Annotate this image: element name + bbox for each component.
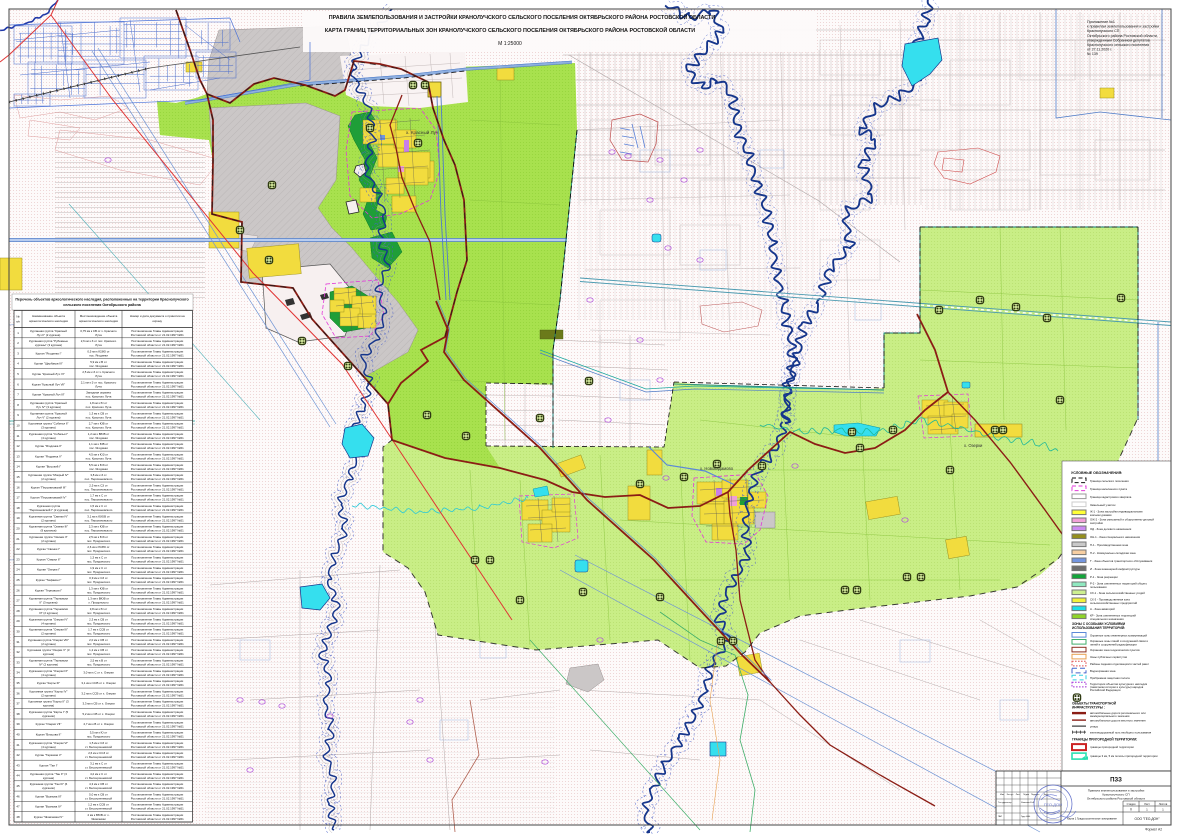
- svg-text:ГАП: ГАП: [998, 815, 1002, 818]
- svg-text:Луча: Луча: [95, 384, 102, 388]
- svg-text:Ростовской области от 21.02.19: Ростовской области от 21.02.1997 №51: [131, 395, 184, 399]
- svg-text:ПРАВИЛА ЗЕМЛЕПОЛЬЗОВАНИЯ И ЗАС: ПРАВИЛА ЗЕМЛЕПОЛЬЗОВАНИЯ И ЗАСТРОЙКИ КРА…: [329, 13, 716, 21]
- svg-text:Российской Федерации: Российской Федерации: [1090, 688, 1121, 692]
- svg-text:Ростовской области от 21.02.19: Ростовской области от 21.02.1997 №51: [131, 364, 184, 368]
- svg-text:Формат А2: Формат А2: [1145, 828, 1162, 832]
- svg-text:х. Красный Луч: х. Красный Луч: [406, 129, 439, 135]
- svg-text:П: П: [1130, 808, 1132, 812]
- svg-text:Луча: Луча: [95, 374, 102, 378]
- svg-text:38: 38: [16, 712, 20, 716]
- svg-text:курганы" (3 кургана): курганы" (3 кургана): [35, 343, 62, 347]
- svg-text:Районы падения отделяющихся ча: Районы падения отделяющихся частей ракет: [1090, 662, 1150, 666]
- svg-text:Лист: Лист: [1144, 802, 1150, 806]
- svg-text:пос. Придонского: пос. Придонского: [87, 652, 111, 656]
- svg-text:к правилам землепользования и: к правилам землепользования и застройки: [1087, 25, 1159, 29]
- svg-text:3,1 км к ССВ от х. Озерки: 3,1 км к ССВ от х. Озерки: [81, 681, 116, 685]
- svg-text:Перечень объектов археологичес: Перечень объектов археологического насле…: [15, 298, 189, 302]
- svg-text:пос. Ягодинки: пос. Ягодинки: [89, 364, 108, 368]
- svg-text:44: 44: [16, 774, 20, 778]
- svg-text:10: 10: [16, 423, 20, 427]
- svg-text:Ростовской области от 21.02.19: Ростовской области от 21.02.1997 №51: [131, 384, 184, 388]
- svg-text:ИСПОЛЬЗОВАНИЯ ТЕРРИТОРИЙ:: ИСПОЛЬЗОВАНИЯ ТЕРРИТОРИЙ:: [1072, 626, 1125, 630]
- svg-text:34: 34: [16, 671, 20, 675]
- svg-text:№док: №док: [1023, 793, 1029, 796]
- svg-text:ст. Бессергеневской: ст. Бессергеневской: [85, 755, 112, 759]
- svg-text:охрану: охрану: [152, 319, 162, 323]
- svg-text:пос. Придонского: пос. Придонского: [87, 570, 111, 574]
- svg-text:31: 31: [16, 640, 20, 644]
- svg-text:ГЕО-ДОН: ГЕО-ДОН: [1044, 802, 1062, 807]
- svg-text:36: 36: [16, 691, 20, 695]
- svg-text:Курган "Ягодинка V": Курган "Ягодинка V": [35, 454, 62, 458]
- svg-text:№ 139: № 139: [1087, 52, 1098, 56]
- svg-text:Ростовской области от 21.02.19: Ростовской области от 21.02.1997 №51: [131, 632, 184, 636]
- svg-text:Ростовской области от 21.02.19: Ростовской области от 21.02.1997 №51: [131, 405, 184, 409]
- svg-text:Номер и дата документа о приня: Номер и дата документа о принятии на: [130, 314, 185, 318]
- svg-text:кургана): кургана): [43, 776, 54, 780]
- svg-text:Ростовской области от 21.02.19: Ростовской области от 21.02.1997 №51: [131, 333, 184, 337]
- svg-text:Ростовской области от 21.02.19: Ростовской области от 21.02.1997 №51: [131, 498, 184, 502]
- svg-text:Луч II" (2 кургана): Луч II" (2 кургана): [37, 333, 61, 337]
- svg-text:35: 35: [16, 681, 20, 685]
- svg-text:пос. Придонского: пос. Придонского: [87, 735, 111, 739]
- svg-text:Ростовской области от 21.02.19: Ростовской области от 21.02.1997 №51: [131, 436, 184, 440]
- svg-text:21: 21: [16, 537, 20, 541]
- svg-text:Курган "Щербаков III": Курган "Щербаков III": [34, 362, 63, 366]
- svg-text:Ростовской области от 21.02.19: Ростовской области от 21.02.1997 №51: [131, 796, 184, 800]
- svg-text:Курган "Власова II": Курган "Власова II": [36, 733, 62, 737]
- svg-text:Ростовской области от 21.02.19: Ростовской области от 21.02.1997 №51: [131, 817, 184, 821]
- svg-text:Краснолучского сельского посел: Краснолучского сельского поселения: [1087, 43, 1149, 47]
- svg-text:ст. Бессергеневской: ст. Бессергеневской: [85, 807, 112, 811]
- svg-text:Тех.директор: Тех.директор: [998, 802, 1012, 804]
- svg-text:границы пригородной территории: границы пригородной территории: [1090, 745, 1134, 749]
- svg-text:"Персиановский I" (2 кургана): "Персиановский I" (2 кургана): [29, 508, 69, 512]
- svg-text:Ростовской области от 21.02.19: Ростовской области от 21.02.1997 №51: [131, 477, 184, 481]
- svg-text:кургана): кургана): [43, 652, 54, 656]
- svg-text:(2 кургана): (2 кургана): [41, 642, 55, 646]
- svg-text:11: 11: [16, 434, 19, 438]
- svg-text:17: 17: [16, 496, 20, 500]
- svg-text:х. Придонского: х. Придонского: [88, 601, 109, 605]
- svg-text:х. Новокадамово: х. Новокадамово: [700, 466, 734, 471]
- svg-text:43: 43: [16, 763, 20, 767]
- svg-text:Курган "Свинки I": Курган "Свинки I": [37, 547, 60, 551]
- svg-text:Стадия: Стадия: [1127, 802, 1136, 806]
- svg-text:Ростовской области от 21.02.19: Ростовской области от 21.02.1997 №51: [131, 559, 184, 563]
- svg-text:М 1:25000: М 1:25000: [498, 41, 522, 47]
- svg-text:39: 39: [16, 722, 20, 726]
- svg-text:12: 12: [16, 444, 20, 448]
- svg-text:ПЗЗ: ПЗЗ: [1110, 778, 1122, 784]
- svg-text:Ростовской области от 21.02.19: Ростовской области от 21.02.1997 №51: [131, 590, 184, 594]
- svg-text:п/п: п/п: [16, 320, 20, 324]
- svg-text:13: 13: [16, 454, 20, 458]
- svg-text:пос. Придонского: пос. Придонского: [87, 611, 111, 615]
- svg-text:пос. Персиановского: пос. Персиановского: [85, 529, 113, 533]
- svg-text:Карта 1 Градостроительное зони: Карта 1 Градостроительное зонирование: [1067, 817, 1117, 821]
- svg-text:29: 29: [16, 619, 20, 623]
- svg-text:IV" (2 кургана): IV" (2 кургана): [39, 663, 58, 667]
- svg-text:от 27.11.2020 г.: от 27.11.2020 г.: [1087, 48, 1112, 52]
- svg-text:Ростовской области от 21.02.19: Ростовской области от 21.02.1997 №51: [131, 601, 184, 605]
- svg-text:ОД - Зона делового назначения: ОД - Зона делового назначения: [1090, 527, 1132, 531]
- svg-text:30: 30: [16, 630, 20, 634]
- svg-text:пос. Ягодинки: пос. Ягодинки: [89, 467, 108, 471]
- svg-text:5,2 км к СВ от х. Озерки: 5,2 км к СВ от х. Озерки: [82, 712, 115, 716]
- svg-text:45: 45: [16, 784, 20, 788]
- svg-text:пос. Придонского: пос. Придонского: [87, 559, 111, 563]
- svg-text:Ростовской области от 21.02.19: Ростовской области от 21.02.1997 №51: [131, 456, 184, 460]
- svg-text:Курган "Озерки II": Курган "Озерки II": [37, 557, 61, 561]
- svg-text:22: 22: [16, 547, 20, 551]
- svg-text:24: 24: [16, 568, 20, 572]
- svg-text:Ростовской области от 21.02.19: Ростовской области от 21.02.1997 №51: [131, 704, 184, 708]
- svg-text:Ростовской области от 21.02.19: Ростовской области от 21.02.1997 №51: [131, 642, 184, 646]
- svg-text:41: 41: [16, 743, 20, 747]
- svg-text:Ростовской области от 21.02.19: Ростовской области от 21.02.1997 №51: [131, 683, 184, 687]
- svg-text:автомобильные дороги местного: автомобильные дороги местного значения: [1090, 718, 1146, 722]
- svg-text:Курган "Персиановский IV": Курган "Персиановский IV": [31, 496, 67, 500]
- svg-text:Ростовской области от 21.02.19: Ростовской области от 21.02.1997 №51: [131, 611, 184, 615]
- svg-text:Курган "Тюфякин I": Курган "Тюфякин I": [36, 578, 62, 582]
- svg-text:пос. Придонского: пос. Придонского: [87, 642, 111, 646]
- svg-text:Водоохранная зона: Водоохранная зона: [1090, 669, 1116, 673]
- svg-text:Курган "Всанова III": Курган "Всанова III": [35, 794, 61, 798]
- svg-text:16: 16: [16, 485, 20, 489]
- svg-text:пос. Персиановского: пос. Персиановского: [85, 498, 113, 502]
- svg-text:Ростовской области от 21.02.19: Ростовской области от 21.02.1997 №51: [131, 467, 184, 471]
- svg-text:Луч IV" (3 кургана): Луч IV" (3 кургана): [36, 405, 61, 409]
- svg-text:Ростовской области от 21.02.19: Ростовской области от 21.02.1997 №51: [131, 343, 184, 347]
- svg-text:Прибрежная защитная полоса: Прибрежная защитная полоса: [1090, 676, 1130, 680]
- svg-text:х. Озерки: х. Озерки: [964, 443, 983, 448]
- svg-text:Ростовской области от 21.02.19: Ростовской области от 21.02.1997 №51: [131, 353, 184, 357]
- svg-text:пос. Придонского: пос. Придонского: [87, 549, 111, 553]
- svg-text:пос. Персиановского: пос. Персиановского: [85, 487, 113, 491]
- svg-text:47: 47: [16, 805, 20, 809]
- svg-text:Зоны публичных сервитутов: Зоны публичных сервитутов: [1090, 655, 1127, 659]
- svg-text:20: 20: [16, 526, 20, 530]
- svg-text:2,7 км к В от х. Озерки: 2,7 км к В от х. Озерки: [83, 722, 113, 726]
- svg-text:сельскохозяйственных предприят: сельскохозяйственных предприятий: [1090, 601, 1138, 605]
- svg-text:25: 25: [16, 578, 20, 582]
- svg-text:пос. Придонского: пос. Придонского: [87, 663, 111, 667]
- svg-text:Ростовской области от 21.02.19: Ростовской области от 21.02.1997 №51: [131, 807, 184, 811]
- svg-text:пос. Придонского: пос. Придонского: [87, 632, 111, 636]
- svg-text:пос. Придонского: пос. Придонского: [87, 621, 111, 625]
- svg-text:Ростовской области от 21.02.19: Ростовской области от 21.02.1997 №51: [131, 446, 184, 450]
- svg-text:Кол.уч: Кол.уч: [1007, 794, 1014, 796]
- svg-text:Яковлевки: Яковлевки: [91, 817, 106, 821]
- svg-text:ст. Бессергеневской: ст. Бессергеневской: [85, 796, 112, 800]
- svg-text:пос. Красного Луча: пос. Красного Луча: [86, 405, 112, 409]
- svg-text:курганов): курганов): [42, 786, 55, 790]
- svg-text:сельского поселения Октябрьско: сельского поселения Октябрьского района: [63, 303, 142, 307]
- svg-text:Ростовской области от 21.02.19: Ростовской области от 21.02.1997 №51: [131, 621, 184, 625]
- svg-text:пос. Красного Луча: пос. Красного Луча: [86, 415, 112, 419]
- svg-text:II" (3 кургана): II" (3 кургана): [40, 601, 58, 605]
- svg-text:Ростовской области от 21.02.19: Ростовской области от 21.02.1997 №51: [131, 724, 184, 728]
- svg-text:ОН-1 - Зона специального назна: ОН-1 - Зона специального назначения: [1090, 535, 1140, 539]
- svg-text:Курган "Тан I": Курган "Тан I": [39, 763, 57, 767]
- svg-text:Луч V" (2 кургана): Луч V" (2 кургана): [37, 415, 61, 419]
- svg-text:Ростовской области от 21.02.19: Ростовской области от 21.02.1997 №51: [131, 539, 184, 543]
- svg-text:Курган "Озерки VII": Курган "Озерки VII": [36, 722, 62, 726]
- svg-text:П-1 - Производственная зона: П-1 - Производственная зона: [1090, 543, 1129, 547]
- svg-text:жилыми домами: жилыми домами: [1090, 513, 1112, 517]
- svg-text:Октябрьского района Ростовской: Октябрьского района Ростовской области,: [1087, 34, 1158, 38]
- svg-text:Курган "Высокий I": Курган "Высокий I": [36, 465, 61, 469]
- svg-text:УСЛОВНЫЕ ОБОЗНАЧЕНИЯ:: УСЛОВНЫЕ ОБОЗНАЧЕНИЯ:: [1071, 471, 1122, 475]
- svg-text:Курган "Красный Луч VII": Курган "Красный Луч VII": [32, 382, 65, 386]
- svg-text:Курган "Озерки I": Курган "Озерки I": [37, 568, 60, 572]
- svg-text:ООО "ГЕО-ДОН": ООО "ГЕО-ДОН": [1135, 817, 1160, 821]
- svg-text:Наименование объекта: Наименование объекта: [32, 314, 65, 318]
- svg-text:границы 3 км, 5 км полосы приг: границы 3 км, 5 км полосы пригородной те…: [1090, 754, 1158, 758]
- svg-text:КАРТА ГРАНИЦ ТЕРРИТОРИАЛЬНЫХ З: КАРТА ГРАНИЦ ТЕРРИТОРИАЛЬНЫХ ЗОН КРАНОЛУ…: [325, 26, 695, 34]
- svg-text:железнодорожный путь необщего: железнодорожный путь необщего пользовани…: [1090, 730, 1152, 734]
- svg-text:ст. Бессергеневской: ст. Бессергеневской: [85, 766, 112, 770]
- svg-text:Граница кадастрового квартала: Граница кадастрового квартала: [1090, 495, 1132, 499]
- svg-text:Т - Зона объектов транспортног: Т - Зона объектов транспортного обслужив…: [1090, 559, 1153, 563]
- svg-text:СХ-1 - Зона сельскохозяйственн: СХ-1 - Зона сельскохозяйственных угодий: [1090, 591, 1145, 595]
- svg-text:пользования: пользования: [1090, 585, 1107, 589]
- svg-text:Изм: Изм: [1000, 794, 1005, 796]
- svg-text:48: 48: [16, 815, 20, 819]
- svg-text:(2 кургана): (2 кургана): [41, 693, 55, 697]
- svg-text:Листов: Листов: [1159, 802, 1168, 806]
- svg-text:Ростовской области от 21.02.19: Ростовской области от 21.02.1997 №51: [131, 549, 184, 553]
- svg-text:33: 33: [16, 660, 20, 664]
- svg-text:пос. Красного Луча: пос. Красного Луча: [86, 456, 112, 460]
- svg-text:(2 кургана): (2 кургана): [41, 539, 55, 543]
- svg-text:Курган "Всанова IV": Курган "Всанова IV": [35, 805, 62, 809]
- svg-text:археологического наследия: археологического наследия: [29, 319, 68, 323]
- svg-text:Ростовской области от 21.02.19: Ростовской области от 21.02.1997 №51: [131, 426, 184, 430]
- svg-text:(9 курганов): (9 курганов): [41, 529, 57, 533]
- svg-text:ст. Бессергеневской: ст. Бессергеневской: [85, 745, 112, 749]
- svg-text:3,0 км к С от х. Озерки: 3,0 км к С от х. Озерки: [83, 671, 114, 675]
- svg-text:пос. Ягодинки: пос. Ягодинки: [89, 353, 108, 357]
- svg-text:14: 14: [16, 465, 20, 469]
- svg-text:Краснолучского СП: Краснолучского СП: [1087, 29, 1120, 33]
- svg-text:Ростовской области от 21.02.19: Ростовской области от 21.02.1997 №51: [131, 652, 184, 656]
- svg-text:пос. Придонского: пос. Придонского: [87, 580, 111, 584]
- svg-text:Курган "Красный Луч VI": Курган "Красный Луч VI": [32, 372, 65, 376]
- svg-text:Местонахождение объекта: Местонахождение объекта: [80, 314, 118, 318]
- svg-text:Ростовской области от 21.02.19: Ростовской области от 21.02.1997 №51: [131, 374, 184, 378]
- svg-text:Курган "Персиановский III": Курган "Персиановский III": [31, 485, 67, 489]
- svg-text:(2 кургана): (2 кургана): [41, 632, 55, 636]
- svg-text:Граница населенного пункта: Граница населенного пункта: [1090, 487, 1128, 491]
- svg-text:Ростовской области от 21.02.19: Ростовской области от 21.02.1997 №51: [131, 487, 184, 491]
- svg-text:Курган "Карты III": Курган "Карты III": [37, 681, 60, 685]
- svg-text:Октябрьского района Ростовской: Октябрьского района Ростовской области: [1087, 797, 1146, 801]
- svg-text:Ростовской области от 21.02.19: Ростовской области от 21.02.1997 №51: [131, 714, 184, 718]
- svg-text:32: 32: [16, 650, 20, 654]
- svg-text:Земельный участок: Земельный участок: [1090, 503, 1116, 507]
- svg-text:кургана): кургана): [43, 704, 54, 708]
- svg-text:Охранная зона геодезических пу: Охранная зона геодезических пунктов: [1090, 648, 1140, 652]
- svg-text:Граница сельского поселения: Граница сельского поселения: [1090, 479, 1129, 483]
- svg-text:(3 кургана): (3 кургана): [41, 426, 55, 430]
- svg-text:Ростовской области от 21.02.19: Ростовской области от 21.02.1997 №51: [131, 755, 184, 759]
- svg-text:III" (2 кургана): III" (2 кургана): [39, 611, 58, 615]
- svg-text:пос. Персиановского: пос. Персиановского: [85, 477, 113, 481]
- svg-text:27: 27: [16, 599, 20, 603]
- svg-text:Ростовской области от 21.02.19: Ростовской области от 21.02.1997 №51: [131, 580, 184, 584]
- svg-text:курганов): курганов): [42, 714, 55, 718]
- svg-text:пос. Ягодинки: пос. Ягодинки: [89, 436, 108, 440]
- svg-text:Ростовской области от 21.02.19: Ростовской области от 21.02.1997 №51: [131, 518, 184, 522]
- svg-text:археологического наследия: археологического наследия: [79, 319, 118, 323]
- svg-text:Ростовской области от 21.02.19: Ростовской области от 21.02.1997 №51: [131, 766, 184, 770]
- svg-text:23: 23: [16, 557, 20, 561]
- svg-text:Ростовской области от 21.02.19: Ростовской области от 21.02.1997 №51: [131, 735, 184, 739]
- svg-text:37: 37: [16, 702, 20, 706]
- svg-text:пос. Ягодинки: пос. Ягодинки: [89, 446, 108, 450]
- svg-text:(4 кургана): (4 кургана): [41, 673, 55, 677]
- svg-text:Ростовской области от 21.02.19: Ростовской области от 21.02.1997 №51: [131, 786, 184, 790]
- svg-text:Ростовской области от 21.02.19: Ростовской области от 21.02.1997 №51: [131, 693, 184, 697]
- svg-text:специального назначения: специального назначения: [1090, 617, 1124, 621]
- svg-text:пос. Придонского: пос. Придонского: [87, 590, 111, 594]
- svg-text:Приложение №1: Приложение №1: [1087, 20, 1115, 24]
- svg-text:утвержденным Собранием депутат: утвержденным Собранием депутатов: [1087, 38, 1150, 42]
- svg-text:(4 кургана): (4 кургана): [41, 621, 55, 625]
- svg-text:Хоменко Е.А.: Хоменко Е.А.: [1021, 801, 1035, 804]
- svg-text:15: 15: [16, 475, 20, 479]
- svg-text:Р-1 - Зона рекреации: Р-1 - Зона рекреации: [1090, 575, 1118, 579]
- svg-text:Ростовской области от 21.02.19: Ростовской области от 21.02.1997 №51: [131, 415, 184, 419]
- svg-text:Курган "Яковлевка IV": Курган "Яковлевка IV": [34, 815, 64, 819]
- svg-text:ст. Бессергеневской: ст. Бессергеневской: [85, 776, 112, 780]
- svg-text:Ростовской области от 21.02.19: Ростовской области от 21.02.1997 №51: [131, 745, 184, 749]
- svg-text:Ростовской области от 21.02.19: Ростовской области от 21.02.1997 №51: [131, 673, 184, 677]
- svg-text:18: 18: [16, 506, 20, 510]
- svg-text:Ростовской области от 21.02.19: Ростовской области от 21.02.1997 №51: [131, 570, 184, 574]
- svg-text:Луча: Луча: [95, 333, 102, 337]
- svg-text:Ростовской области от 21.02.19: Ростовской области от 21.02.1997 №51: [131, 663, 184, 667]
- svg-text:(4 кургана): (4 кургана): [41, 436, 55, 440]
- svg-text:А - Зона акваторий: А - Зона акваторий: [1090, 607, 1115, 611]
- svg-text:линий и сооружений радиофикаци: линий и сооружений радиофикации: [1090, 642, 1137, 646]
- svg-text:19: 19: [16, 516, 20, 520]
- svg-text:28: 28: [16, 609, 20, 613]
- svg-text:Ростовской области от 21.02.19: Ростовской области от 21.02.1997 №51: [131, 529, 184, 533]
- svg-text:ст. Бессергеневской: ст. Бессергеневской: [85, 786, 112, 790]
- svg-text:пос. Придонского: пос. Придонского: [87, 539, 111, 543]
- svg-text:пос. Красного Луча: пос. Красного Луча: [86, 395, 112, 399]
- svg-text:улицы: улицы: [1090, 724, 1098, 728]
- svg-text:40: 40: [16, 733, 20, 737]
- svg-text:(2 кургана): (2 кургана): [41, 477, 55, 481]
- svg-text:(2 кургана): (2 кургана): [41, 518, 55, 522]
- svg-text:Ростовской области от 21.02.19: Ростовской области от 21.02.1997 №51: [131, 776, 184, 780]
- svg-text:Курган "Ягодинка I": Курган "Ягодинка I": [36, 351, 62, 355]
- svg-text:застройки: застройки: [1090, 521, 1103, 525]
- svg-text:Лист: Лист: [1016, 794, 1021, 796]
- svg-text:пос. Красного Луча: пос. Красного Луча: [86, 426, 112, 430]
- svg-text:ГРАНИЦЫ ПРИГОРОДНОЙ ТЕРРИТОРИИ: ГРАНИЦЫ ПРИГОРОДНОЙ ТЕРРИТОРИИ:: [1072, 738, 1137, 742]
- svg-text:пос. Персиановского: пос. Персиановского: [85, 518, 113, 522]
- svg-text:Курган "Красный Луч III": Курган "Красный Луч III": [32, 393, 64, 397]
- svg-text:26: 26: [16, 588, 20, 592]
- svg-text:Курган "Тарказов V": Курган "Тарказов V": [35, 753, 62, 757]
- svg-text:(4 кургана): (4 кургана): [41, 745, 55, 749]
- svg-text:3,3 км к СВ от х. Озерки: 3,3 км к СВ от х. Озерки: [82, 702, 115, 706]
- svg-text:Луча: Луча: [95, 343, 102, 347]
- svg-text:ИНФРАСТРУКТУРЫ :: ИНФРАСТРУКТУРЫ :: [1072, 706, 1105, 710]
- svg-text:Гудь Н.А.: Гудь Н.А.: [1021, 815, 1031, 818]
- svg-text:Ростовской области от 21.02.19: Ростовской области от 21.02.1997 №51: [131, 508, 184, 512]
- svg-text:42: 42: [16, 753, 20, 757]
- svg-text:Курган "Ягодинка II": Курган "Ягодинка II": [35, 444, 62, 448]
- svg-text:Курган "Терновски I": Курган "Терновски I": [35, 588, 62, 592]
- svg-text:Охранные зоны инженерных комму: Охранные зоны инженерных коммуникаций: [1090, 633, 1147, 637]
- svg-text:3,2 км к ССВ от х. Озерки: 3,2 км к ССВ от х. Озерки: [81, 691, 116, 695]
- svg-text:46: 46: [16, 794, 20, 798]
- svg-text:И - Зона инженерной инфраструк: И - Зона инженерной инфраструктуры: [1090, 567, 1140, 571]
- svg-text:пос. Персиановского: пос. Персиановского: [85, 508, 113, 512]
- svg-text:П-2 - Коммунально-складская зо: П-2 - Коммунально-складская зона: [1090, 551, 1136, 555]
